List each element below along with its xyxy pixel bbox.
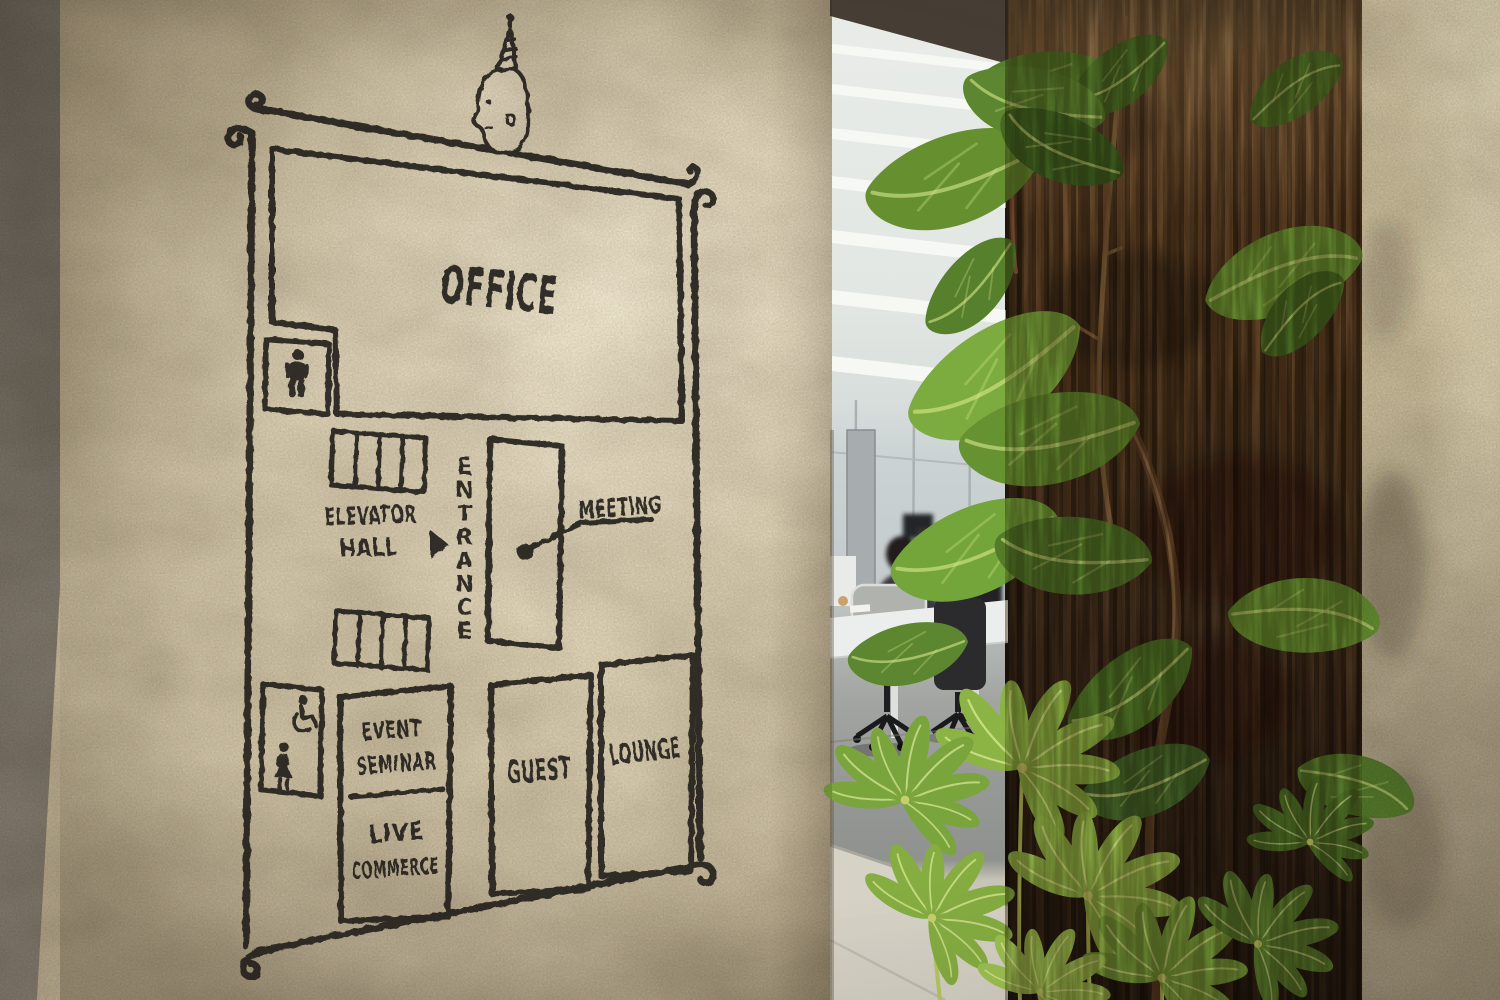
elevator-hall-label-line2: HALL	[339, 532, 398, 563]
entrance-arrow-icon	[430, 530, 448, 558]
papers	[850, 604, 870, 612]
doodle-eye	[486, 99, 491, 104]
live-commerce-label-line2: COMMERCE	[351, 853, 441, 885]
wheelchair-icon	[294, 695, 316, 731]
office-label: OFFICE	[437, 255, 561, 327]
leaf	[1234, 38, 1357, 138]
corner-curl-icon	[249, 94, 280, 111]
frame-bottom	[258, 866, 692, 951]
floor-plan-map: OFFICE ELEVATOR HALL ENTRANCE MEETING EV…	[228, 14, 713, 977]
event-label-line2: SEMINAR	[356, 747, 438, 781]
corner-curl-icon	[694, 191, 713, 212]
mug	[838, 596, 848, 606]
scene-drawing: OFFICE ELEVATOR HALL ENTRANCE MEETING EV…	[0, 0, 1500, 1000]
room-divider-line	[351, 789, 443, 797]
corner-curl-icon	[688, 167, 698, 184]
office-entrance-photo: OFFICE ELEVATOR HALL ENTRANCE MEETING EV…	[0, 0, 1500, 1000]
entrance-label: ENTRANCE	[455, 455, 474, 645]
meeting-point-dot	[517, 544, 533, 560]
meeting-room	[488, 439, 562, 648]
accessible-restroom-room	[261, 684, 322, 796]
guest-label: GUEST	[506, 750, 573, 791]
meeting-label: MEETING	[577, 490, 663, 525]
womens-restroom-icon	[273, 742, 293, 791]
corner-curl-icon	[243, 951, 270, 977]
frame-left	[246, 133, 252, 946]
event-label-line1: EVENT	[361, 714, 423, 746]
live-commerce-label-line1: LIVE	[367, 816, 425, 849]
doodle-head-icon	[474, 14, 528, 154]
wall-edge-shade	[820, 430, 834, 1000]
corner-curl-icon	[228, 129, 252, 145]
elevator-hall-label-line1: ELEVATOR	[324, 499, 417, 531]
lounge-label: LOUNGE	[607, 731, 682, 771]
mens-restroom-icon	[284, 349, 309, 398]
